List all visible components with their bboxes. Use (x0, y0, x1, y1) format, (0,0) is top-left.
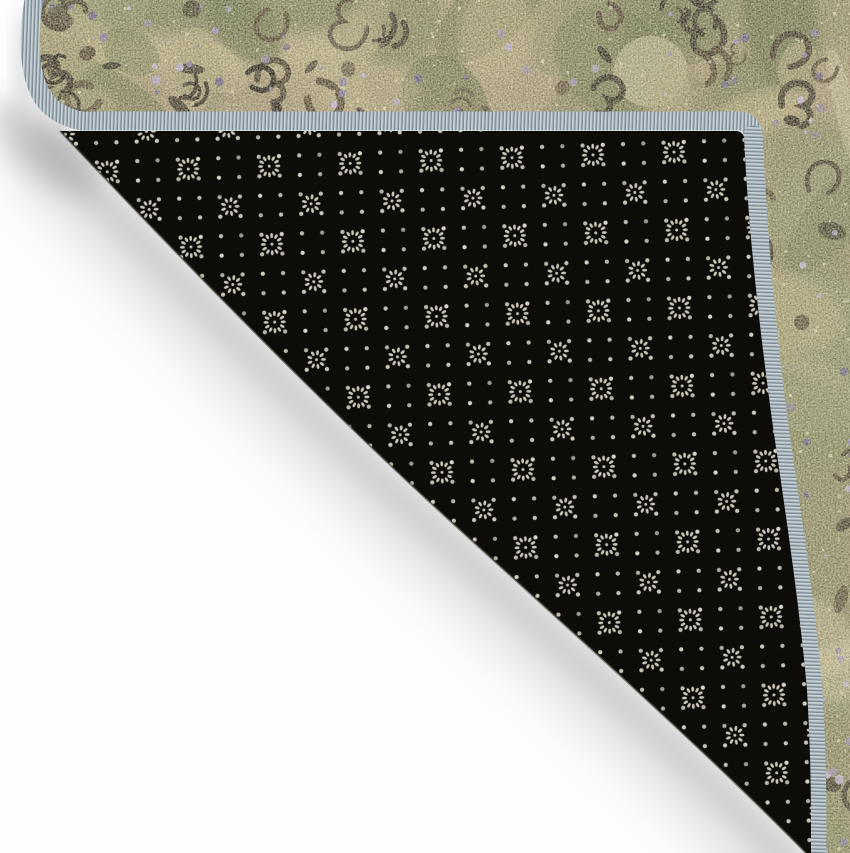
rug-product-photo (0, 0, 850, 853)
scene-svg (0, 0, 850, 853)
